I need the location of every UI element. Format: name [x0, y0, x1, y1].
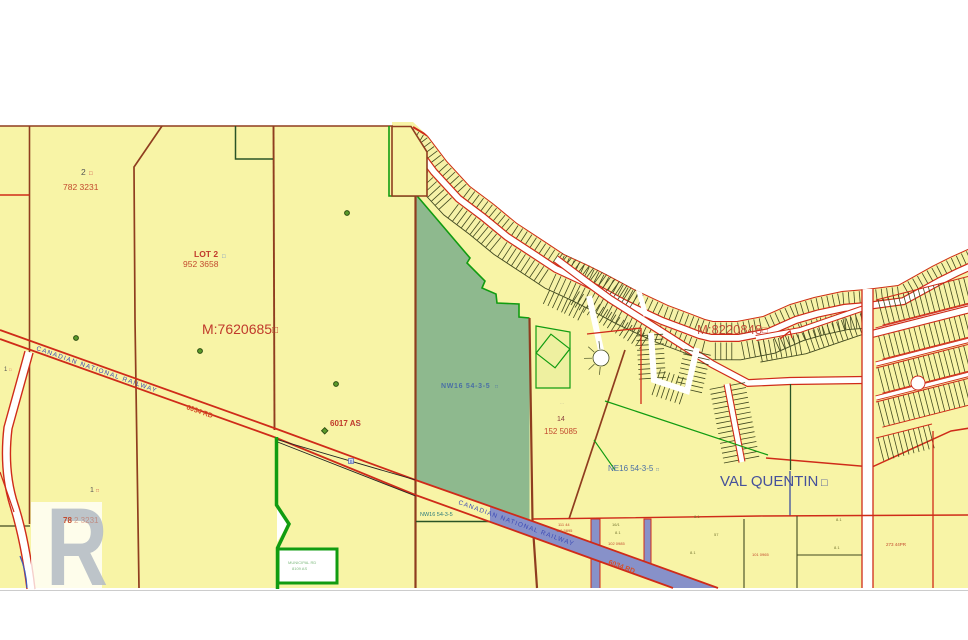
svg-text:□: □: [495, 384, 498, 390]
svg-text:□: □: [89, 171, 93, 177]
svg-text:M:8220848: M:8220848: [697, 322, 762, 337]
svg-text:78: 78: [63, 516, 72, 525]
svg-text:B: B: [350, 459, 353, 464]
svg-text:□: □: [96, 488, 99, 494]
svg-text:8.1: 8.1: [615, 530, 621, 535]
svg-text:273 44PR: 273 44PR: [886, 542, 907, 547]
svg-text:VAL QUENTIN: VAL QUENTIN: [720, 473, 818, 490]
svg-text:MUNICIPAL RD: MUNICIPAL RD: [288, 560, 316, 565]
svg-text:LOT 2: LOT 2: [194, 249, 218, 259]
svg-text:M:7620685: M:7620685: [202, 321, 272, 337]
svg-text:152 5085: 152 5085: [544, 427, 578, 436]
svg-text:NW16 54-3-5: NW16 54-3-5: [441, 383, 490, 390]
svg-text:□: □: [821, 477, 828, 489]
svg-text:2 3231: 2 3231: [74, 516, 99, 525]
svg-text:2: 2: [81, 167, 86, 177]
svg-text:102 0985: 102 0985: [608, 541, 625, 546]
svg-text:782 3231: 782 3231: [63, 182, 99, 192]
svg-text:□: □: [272, 325, 278, 336]
svg-text:101 0965: 101 0965: [752, 552, 769, 557]
svg-text:□: □: [762, 325, 768, 335]
svg-text:NE16 54-3-5: NE16 54-3-5: [608, 464, 654, 473]
svg-text:110 5895: 110 5895: [556, 528, 573, 533]
svg-text:952 3658: 952 3658: [183, 259, 219, 269]
svg-text:57: 57: [714, 532, 719, 537]
svg-text:1: 1: [90, 487, 94, 494]
svg-text:□: □: [656, 467, 659, 473]
svg-text:□: □: [357, 422, 360, 428]
svg-text:8109 AS: 8109 AS: [292, 566, 307, 571]
svg-text:NW16 54-3-5: NW16 54-3-5: [420, 512, 453, 518]
svg-text:□: □: [222, 254, 226, 260]
svg-text:…: …: [560, 400, 564, 405]
svg-text:8.1: 8.1: [836, 517, 842, 522]
svg-text:16/1: 16/1: [612, 522, 621, 527]
svg-text:8.1: 8.1: [690, 550, 696, 555]
svg-text:14: 14: [557, 416, 565, 423]
svg-text:8.1: 8.1: [694, 514, 700, 519]
svg-text:111 44: 111 44: [558, 522, 570, 527]
svg-text:8.1: 8.1: [834, 545, 840, 550]
